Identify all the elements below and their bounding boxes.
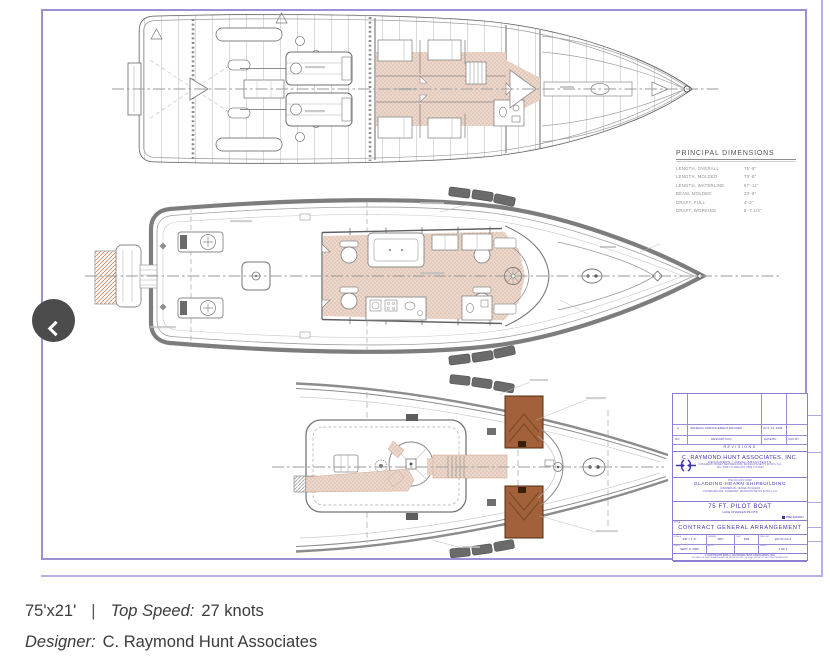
legal-line: NO PART OF THIS DRAWING MAY BE REPRODUCE… bbox=[673, 557, 807, 559]
project-client: LAKE CHARLES PILOTS bbox=[673, 511, 807, 515]
boat-dimensions: 75'x21' bbox=[25, 602, 76, 621]
field-drawn: DRAWNRFP bbox=[707, 535, 735, 545]
table-line bbox=[687, 394, 688, 444]
dimension-row: DRAFT, FULL 4'-2" bbox=[676, 199, 796, 208]
title-block: A GENERAL ARRANGEMENT REVISED OCT. 23, 2… bbox=[672, 393, 808, 561]
field-date: DATESEPT. 8, 2008 bbox=[673, 545, 707, 555]
table-rule bbox=[676, 159, 796, 162]
revision-description: GENERAL ARRANGEMENT REVISED bbox=[690, 427, 742, 430]
stamp-square-icon bbox=[782, 516, 785, 519]
revision-col-chk: CHK BY bbox=[788, 438, 799, 441]
field-scale: SCALE3/8" = 1'-0" bbox=[673, 535, 707, 545]
revision-no: A bbox=[677, 427, 679, 430]
speed-value: 27 knots bbox=[201, 602, 263, 621]
table-line bbox=[673, 435, 807, 436]
designer-block: C. RAYMOND HUNT ASSOCIATES, INC. DESIGNE… bbox=[673, 452, 807, 478]
revisions-title: REVISIONS bbox=[673, 445, 807, 449]
carousel-prev-button[interactable] bbox=[32, 299, 75, 342]
designer-value: C. Raymond Hunt Associates bbox=[103, 633, 318, 652]
general-arrangement-drawing bbox=[0, 0, 830, 672]
table-line bbox=[761, 394, 762, 444]
builder-address: 1 RIVERSIDE AVE. SOMERSET, MASSACHUSETTS… bbox=[673, 491, 807, 494]
dimension-row: LENGTH, WATERLINE 67'-11" bbox=[676, 182, 796, 191]
dimension-row: DRAFT, WORKING 6'-7 1/2" bbox=[676, 207, 796, 216]
table-line bbox=[786, 394, 787, 444]
drawing-title-block: TITLE CONTRACT GENERAL ARRANGEMENT bbox=[673, 521, 807, 535]
dimension-row: BEAM, MOLDED 20'-6" bbox=[676, 190, 796, 199]
designer-label: Designer: bbox=[25, 633, 96, 652]
revision-date: OCT. 23, 2008 bbox=[763, 427, 782, 430]
field-blank bbox=[735, 545, 759, 555]
field-check: CHKDLB bbox=[735, 535, 759, 545]
revision-col-date: DATE/BY bbox=[764, 438, 777, 441]
revision-table: A GENERAL ARRANGEMENT REVISED OCT. 23, 2… bbox=[673, 394, 807, 452]
caption-separator: | bbox=[91, 602, 95, 621]
preliminary-stamp: PRELIMINARY bbox=[782, 516, 804, 519]
hunt-logo bbox=[676, 459, 696, 472]
boat-listing-carousel-slide: PRINCIPAL DIMENSIONS LENGTH, OVERALL 75'… bbox=[0, 0, 830, 672]
title-corner-label: TITLE bbox=[674, 522, 680, 525]
builder-block: THE DUCLOS CORP. GLADDING-HEARN SHIPBUIL… bbox=[673, 478, 807, 502]
revision-col-no: NO. bbox=[675, 438, 680, 441]
dimension-row: LENGTH, MOLDED 73'-8" bbox=[676, 173, 796, 182]
spec-line-1: 75'x21' | Top Speed: 27 knots bbox=[25, 602, 317, 621]
spec-line-2: Designer: C. Raymond Hunt Associates bbox=[25, 633, 317, 652]
revision-col-desc: DESCRIPTION bbox=[711, 438, 732, 441]
lower-deck-plan bbox=[112, 13, 720, 165]
field-sheet: SHEET1 OF 1 bbox=[759, 545, 807, 555]
principal-dimensions-table: PRINCIPAL DIMENSIONS LENGTH, OVERALL 75'… bbox=[676, 150, 796, 216]
fields-grid: SCALE3/8" = 1'-0" DRAWNRFP CHKDLB DWG NO… bbox=[673, 535, 807, 554]
table-line bbox=[673, 424, 807, 425]
dimension-row: LENGTH, OVERALL 75'-8" bbox=[676, 165, 796, 174]
deckhouse-top-plan bbox=[272, 374, 668, 558]
spec-caption: 75'x21' | Top Speed: 27 knots Designer: … bbox=[25, 602, 317, 652]
drawing-title: CONTRACT GENERAL ARRANGEMENT bbox=[673, 525, 807, 531]
field-dwg-no: DWG NO.207-01 GA-1 bbox=[759, 535, 807, 545]
field-appd: APPD bbox=[707, 545, 735, 555]
chevron-left-icon bbox=[48, 320, 64, 336]
principal-dimensions-title: PRINCIPAL DIMENSIONS bbox=[676, 150, 796, 157]
speed-label: Top Speed: bbox=[111, 602, 195, 621]
copyright-block: © COPYRIGHT 2008 C. RAYMOND HUNT ASSOCIA… bbox=[673, 554, 807, 562]
project-block: 75 FT. PILOT BOAT LAKE CHARLES PILOTS PR… bbox=[673, 502, 807, 521]
